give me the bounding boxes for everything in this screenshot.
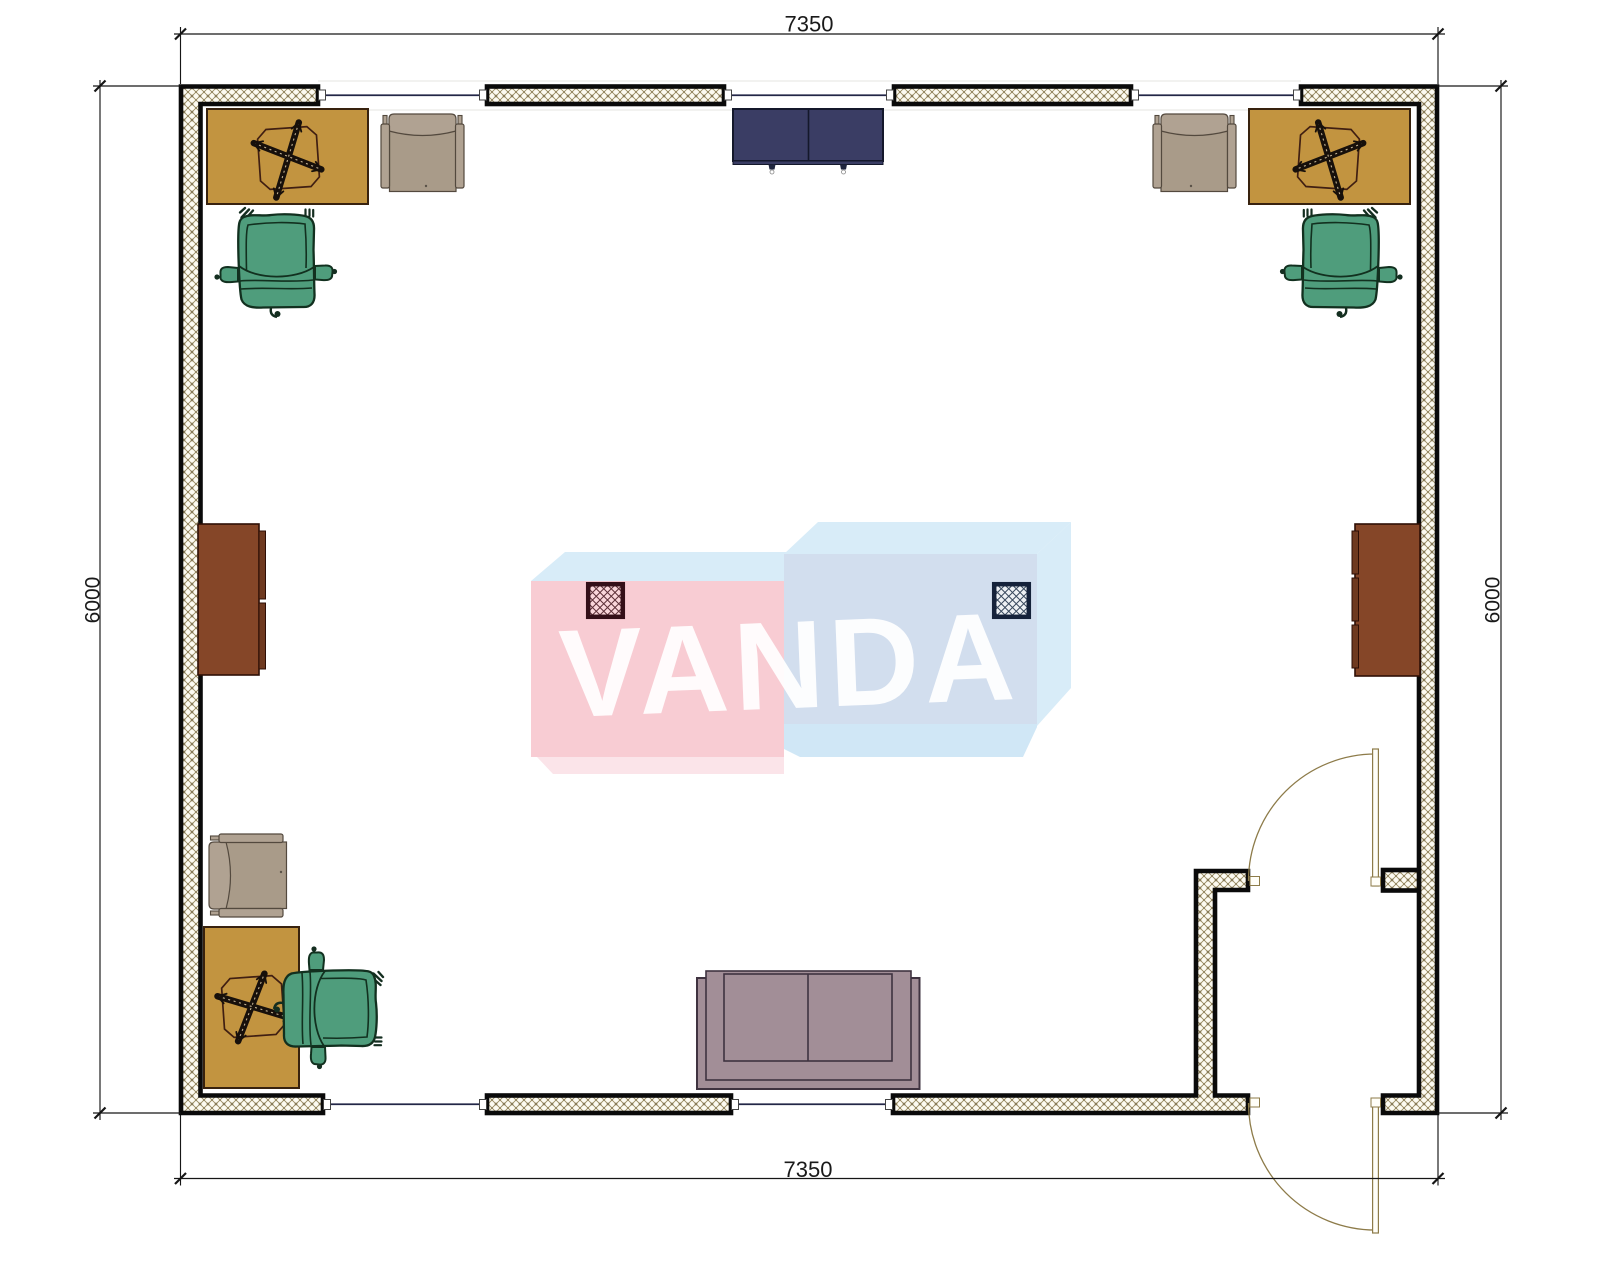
svg-text:7350: 7350 (785, 12, 834, 37)
svg-text:7350: 7350 (784, 1157, 833, 1182)
svg-text:VANDA: VANDA (557, 587, 1022, 744)
svg-text:6000: 6000 (1482, 577, 1505, 624)
svg-text:6000: 6000 (82, 577, 105, 624)
